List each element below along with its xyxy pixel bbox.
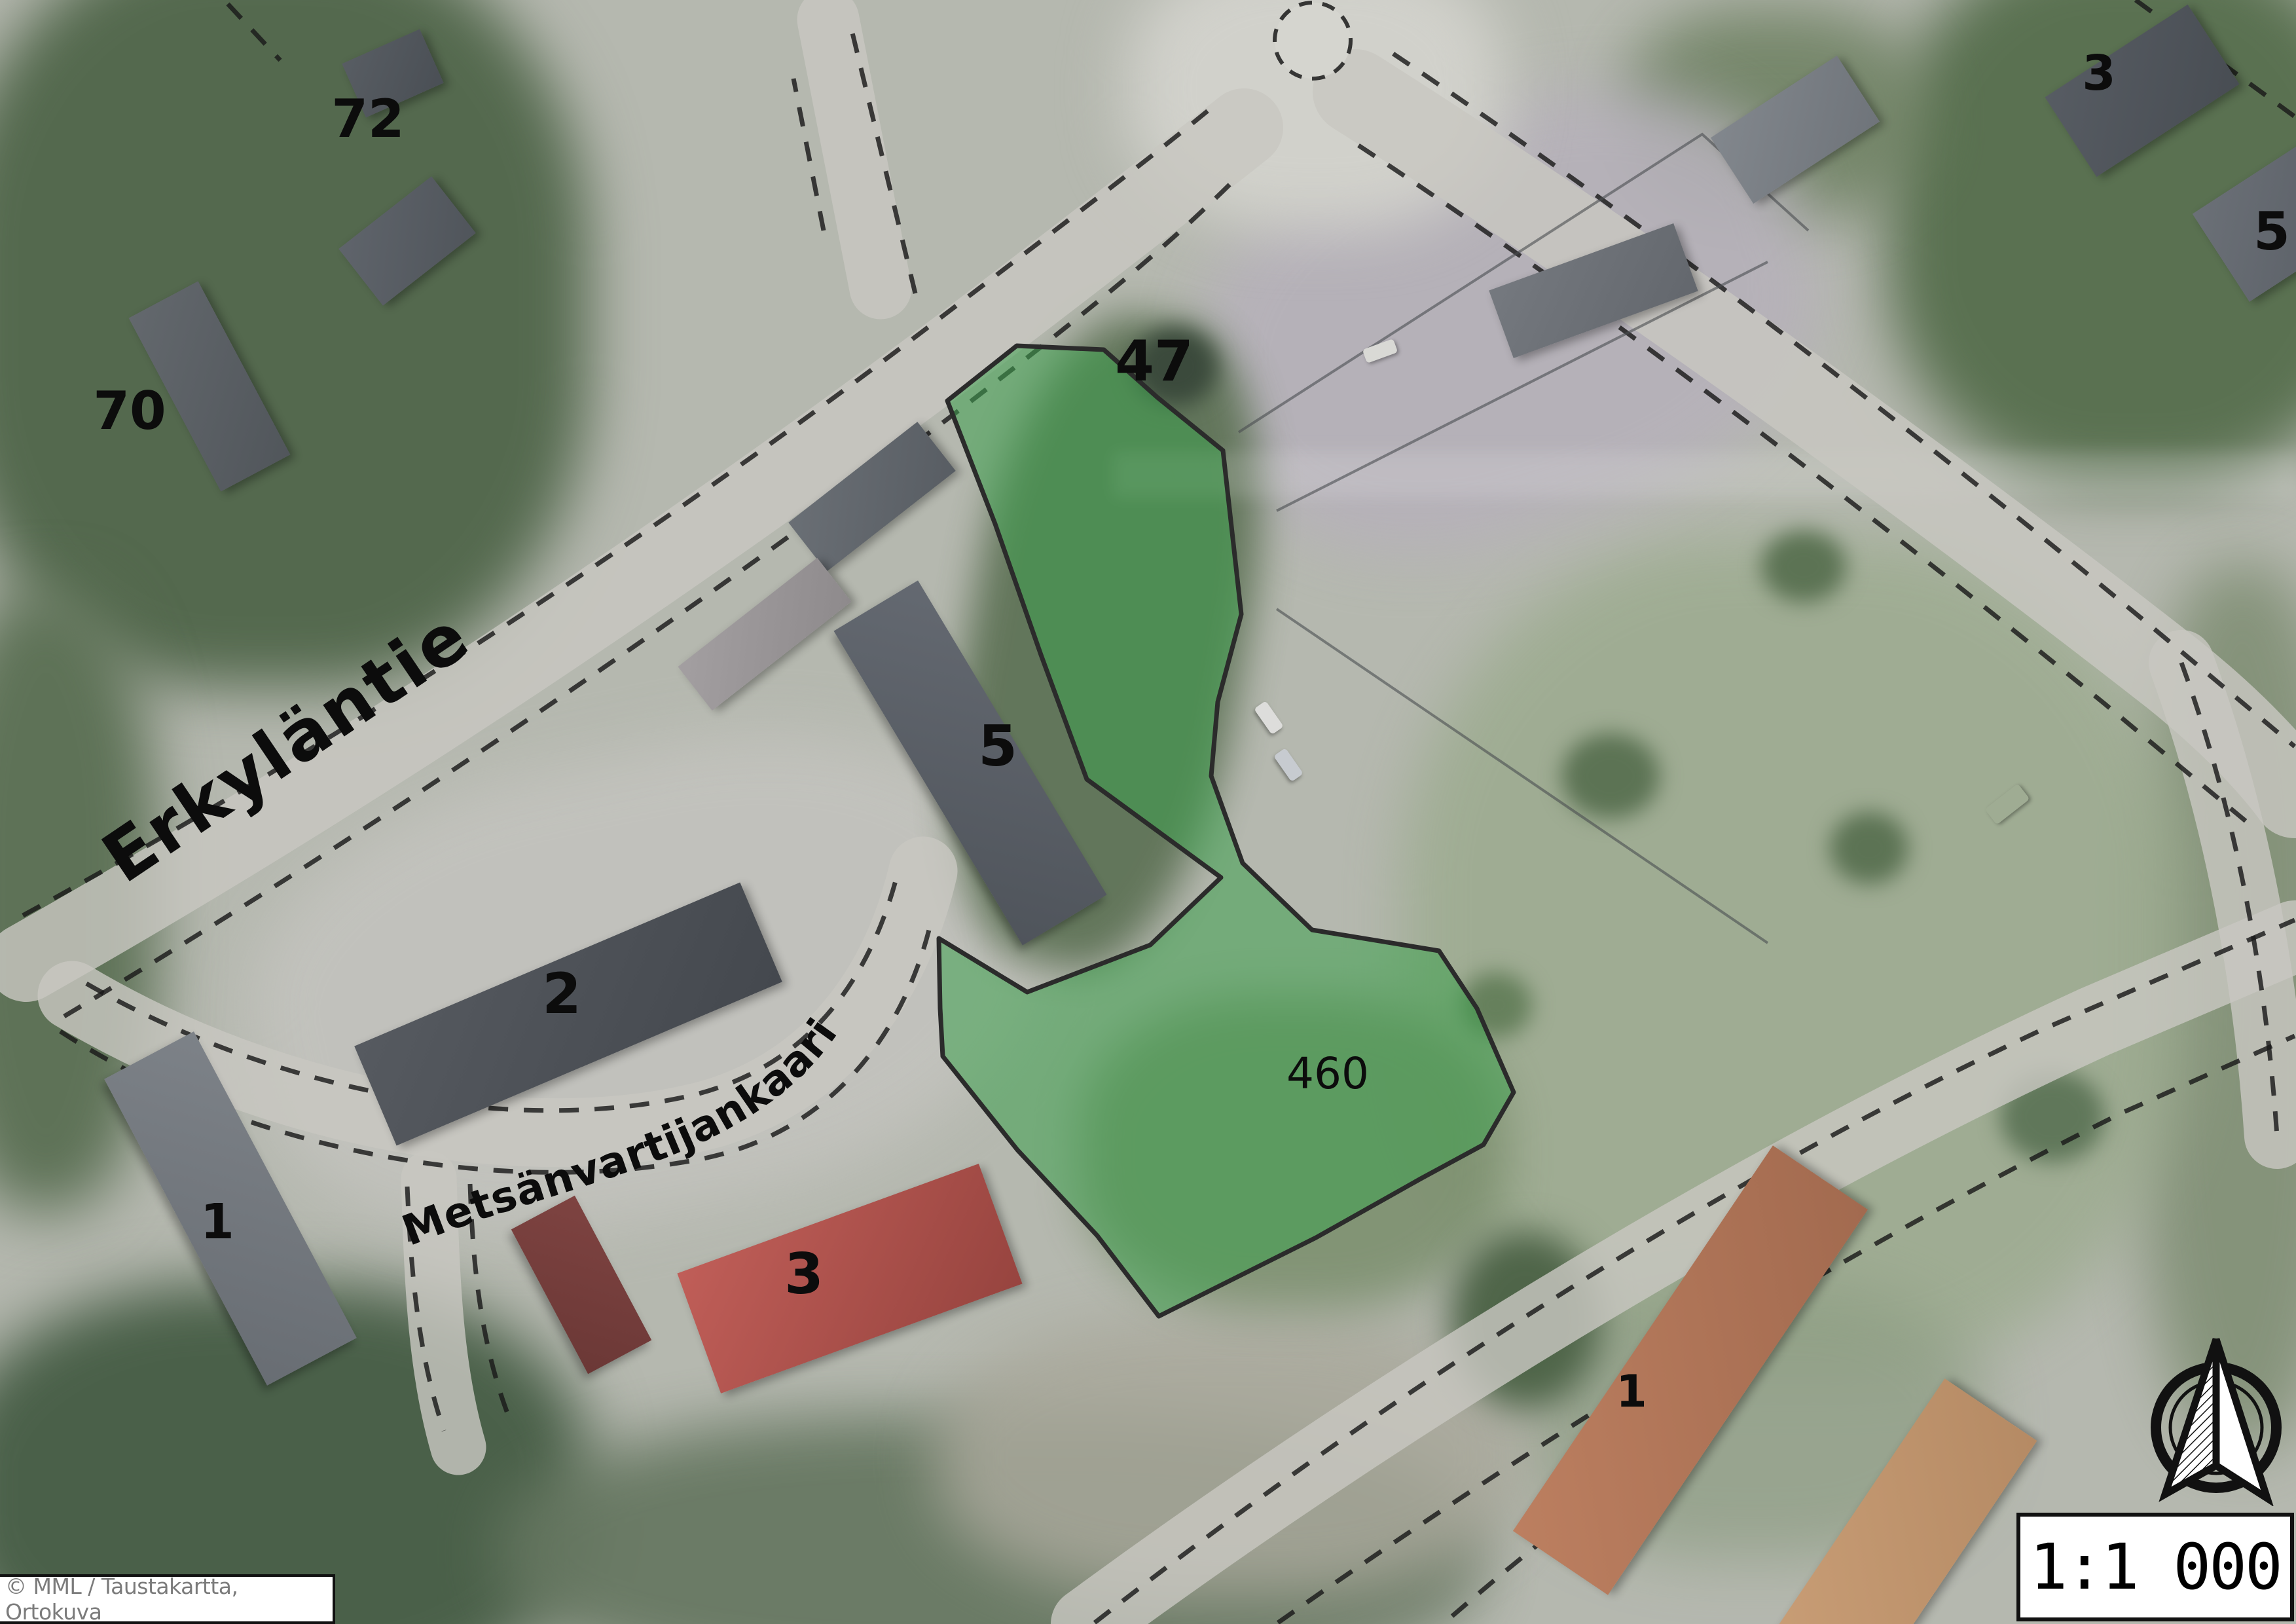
address-number-label: 3 — [784, 1246, 824, 1302]
address-number-label: 2 — [542, 966, 581, 1022]
address-number-label: 3 — [2082, 49, 2116, 98]
attribution: © MML / Taustakartta, Ortokuva — [0, 1574, 335, 1624]
scale-label: 1:1 000 — [2030, 1530, 2281, 1604]
address-number-label: 70 — [93, 385, 166, 437]
map-canvas[interactable]: ErkyläntieMetsänvartijankaari 7270475213… — [0, 0, 2296, 1624]
address-number-label: 72 — [331, 93, 404, 145]
address-number-label: 5 — [2253, 206, 2290, 258]
labels-layer: 72704752133511460 — [0, 0, 2296, 1624]
address-number-label: 1 — [1616, 1370, 1647, 1414]
scale-indicator: 1:1 000 — [2016, 1513, 2294, 1621]
north-arrow-icon — [2147, 1336, 2285, 1506]
address-number-label: 1 — [200, 1198, 234, 1246]
address-number-label: 5 — [978, 718, 1017, 775]
address-number-label: 47 — [1115, 333, 1194, 390]
attribution-text: © MML / Taustakartta, Ortokuva — [5, 1574, 333, 1624]
parcel-number-label: 460 — [1286, 1052, 1369, 1096]
